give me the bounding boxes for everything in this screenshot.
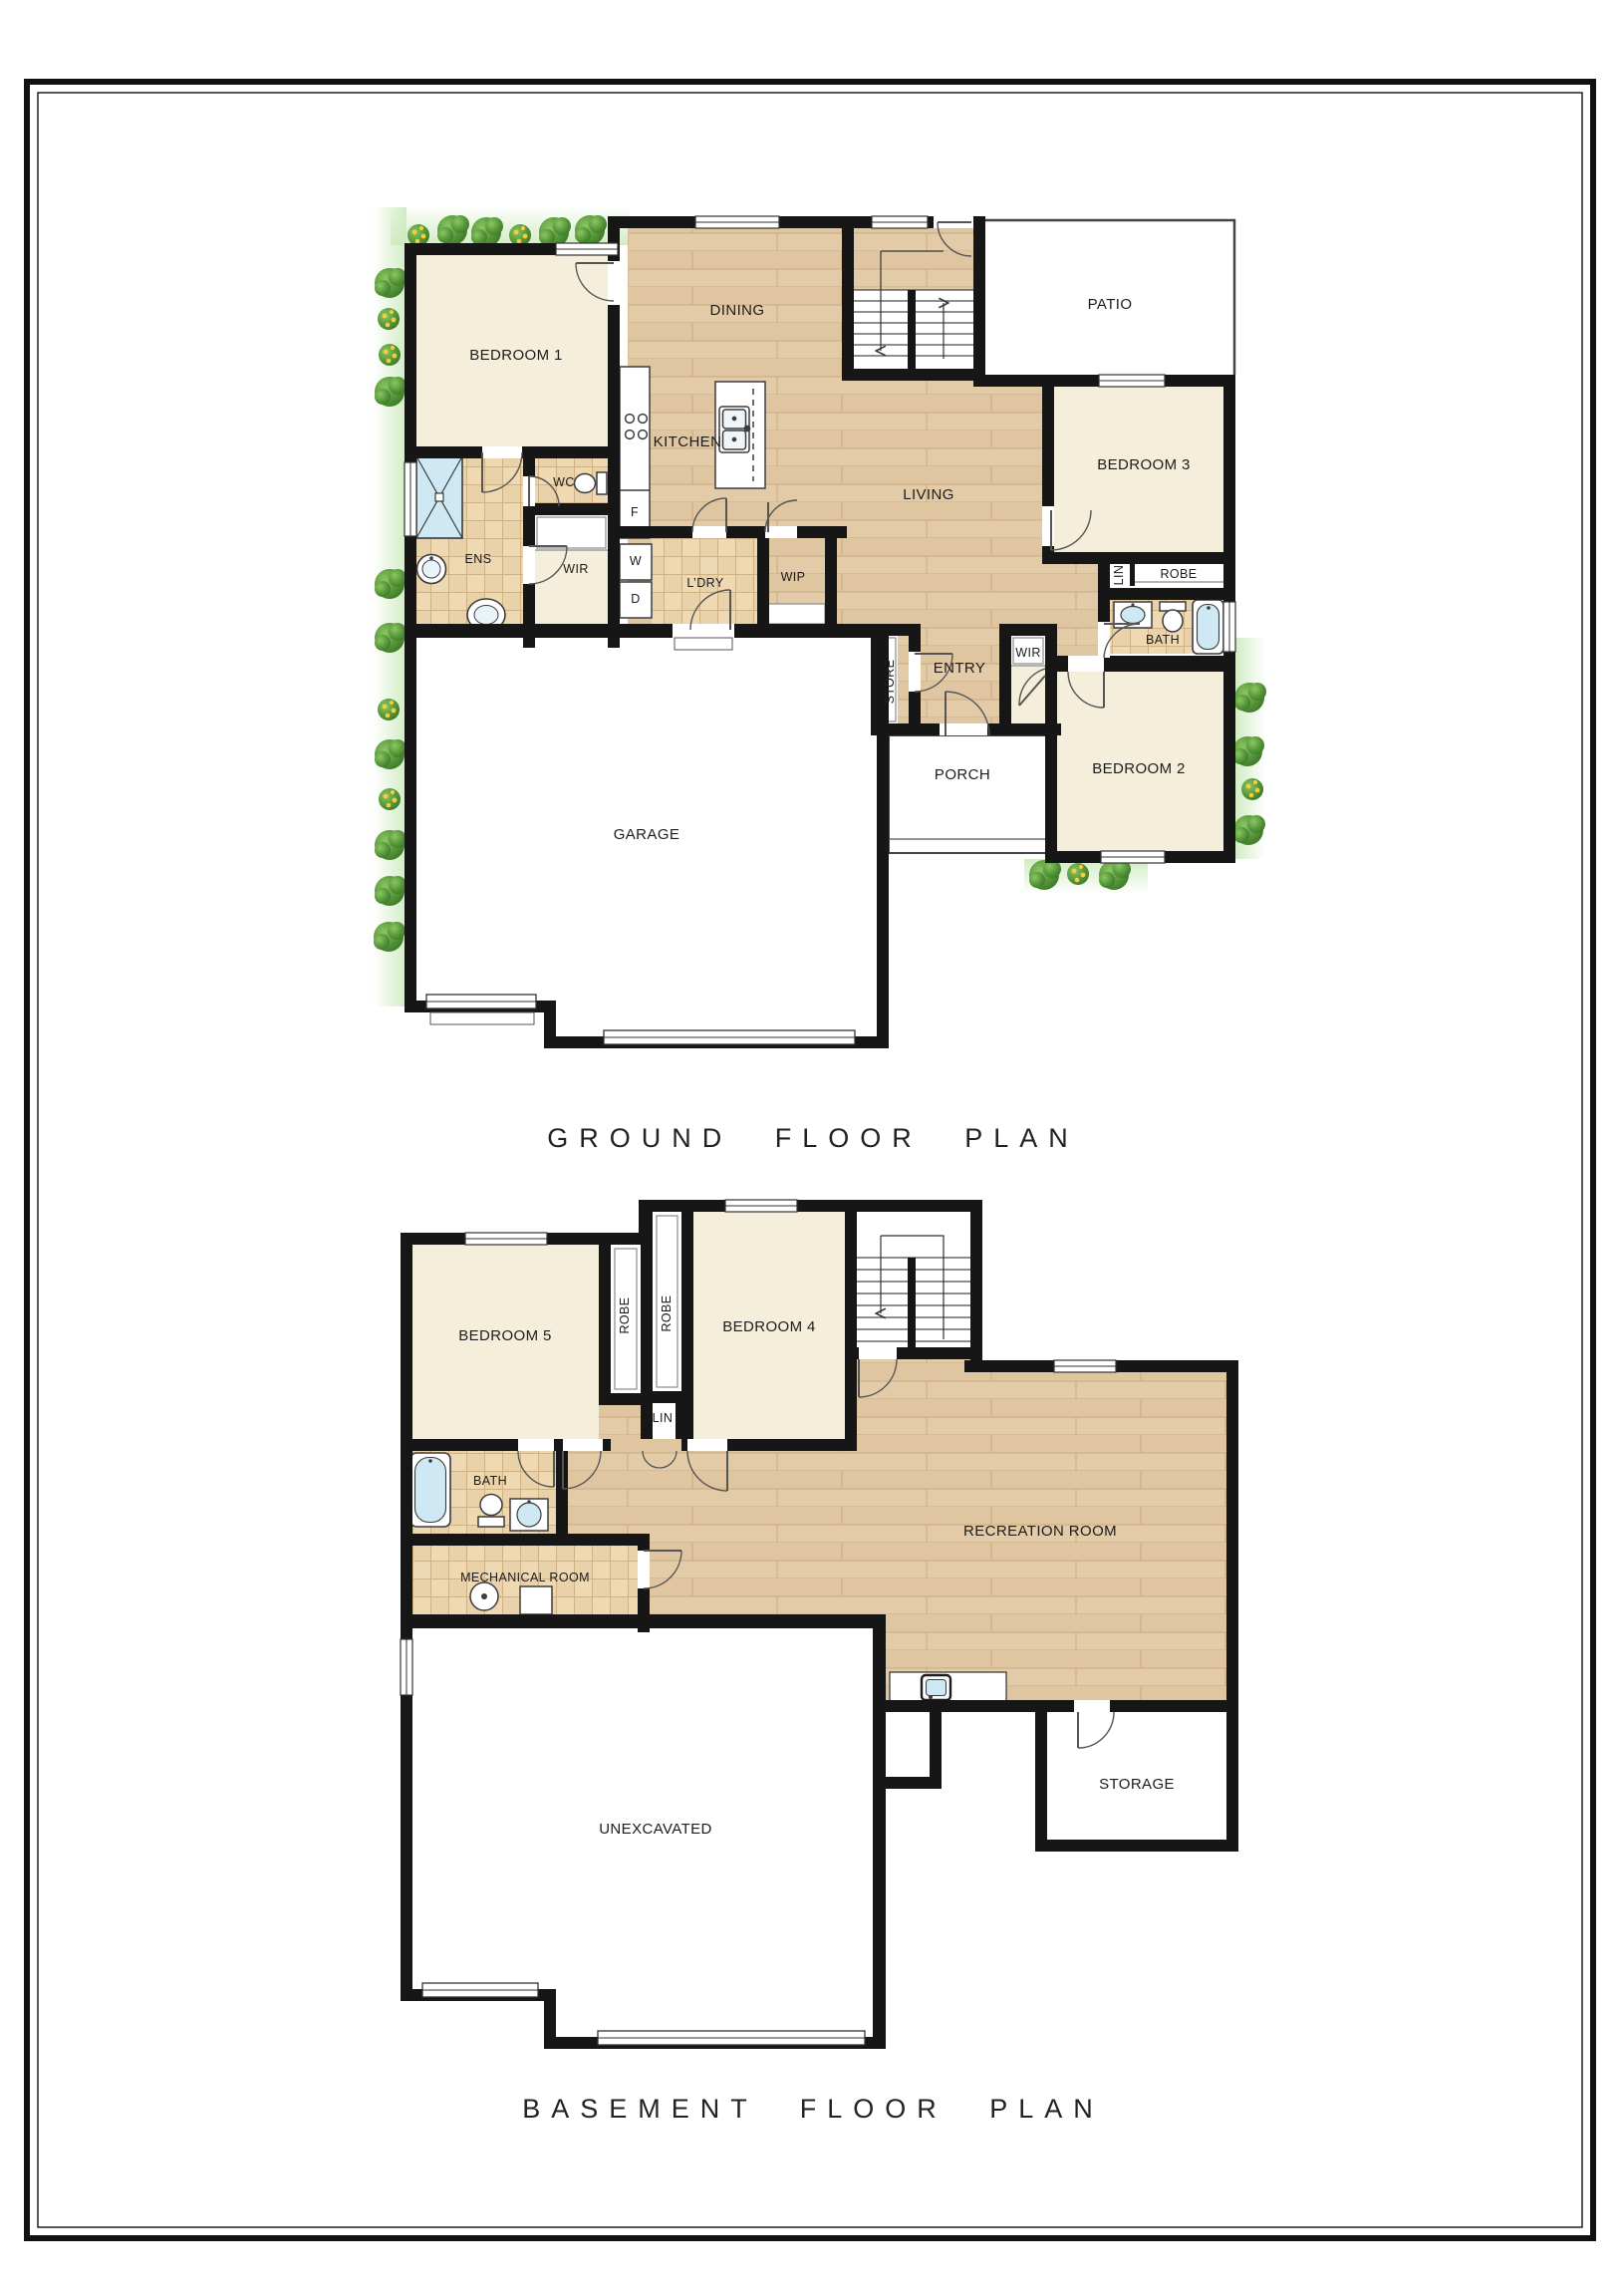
kitchen-label: KITCHEN [654, 434, 722, 451]
bush-icon [407, 224, 429, 246]
patio-label: PATIO [1088, 297, 1133, 314]
laundry-label: L’DRY [686, 577, 723, 591]
basement-floor-title: BASEMENT FLOOR PLAN [522, 2095, 1104, 2125]
window [465, 1233, 547, 1245]
window [1101, 851, 1165, 863]
stair-landing-floor [854, 228, 973, 290]
bedroom5-label: BEDROOM 5 [458, 1328, 552, 1345]
recreation-room-label: RECREATION ROOM [963, 1524, 1117, 1541]
garage-floor [416, 638, 877, 1001]
store-label: STORE [884, 660, 898, 705]
ground-floor-title: GROUND FLOOR PLAN [547, 1124, 1079, 1154]
washer-label: W [630, 555, 642, 569]
toilet-icon [478, 1495, 504, 1528]
fridge-label: F [631, 506, 639, 520]
bathtub-icon [1193, 600, 1223, 654]
porch-floor [889, 735, 1047, 853]
entry-label: ENTRY [934, 661, 986, 678]
bath-label: BATH [1146, 634, 1180, 648]
basement-bath-label: BATH [473, 1475, 507, 1489]
window [695, 216, 779, 228]
bedroom3-label: BEDROOM 3 [1097, 457, 1191, 474]
living-label: LIVING [903, 487, 954, 504]
window [556, 243, 618, 255]
bar-sink-icon [922, 1675, 950, 1700]
wir-floor [535, 550, 608, 624]
ground-floor-plan [373, 205, 1266, 1048]
garage-door [426, 995, 536, 1008]
garage-door [604, 1030, 855, 1044]
basement-linen-label: LIN [653, 1412, 674, 1426]
basin-icon [417, 555, 446, 584]
window [1223, 602, 1235, 652]
window [725, 1200, 797, 1212]
wip-label: WIP [781, 571, 806, 585]
bedroom1-label: BEDROOM 1 [469, 348, 563, 365]
porch-label: PORCH [935, 767, 990, 784]
dining-label: DINING [710, 303, 765, 320]
window [1099, 375, 1165, 387]
window [405, 462, 416, 536]
window [422, 1983, 538, 1997]
unexcavated-floor [412, 1628, 873, 1989]
mechanical-room-label: MECHANICAL ROOM [460, 1572, 590, 1585]
wir2-label: WIR [1015, 647, 1041, 661]
window [872, 216, 928, 228]
toilet-icon [575, 472, 608, 494]
garage-step [430, 1012, 534, 1024]
floor-plan-page: BEDROOM 1 DINING PATIO KITCHEN LIVING BE… [0, 0, 1622, 2296]
bedroom4-label: BEDROOM 4 [722, 1319, 816, 1336]
robe2-label: ROBE [661, 1294, 675, 1331]
cellar-floor [886, 1712, 930, 1777]
furnace-icon [520, 1586, 552, 1614]
bedroom2-label: BEDROOM 2 [1092, 761, 1186, 778]
shower-icon [416, 456, 462, 538]
wir-label: WIR [563, 563, 589, 577]
vanity-sink-icon [510, 1499, 548, 1531]
dryer-label: D [631, 593, 640, 607]
window [1054, 1360, 1116, 1372]
wet-bar [890, 1672, 1006, 1702]
storage-label: STORAGE [1099, 1777, 1175, 1794]
linen-label: LIN [1113, 565, 1127, 586]
ensuite-label: ENS [465, 553, 492, 567]
robe-label: ROBE [1160, 568, 1197, 582]
wc-label: WC [553, 476, 575, 490]
bathtub-icon [410, 1453, 450, 1527]
garage-label: GARAGE [614, 827, 680, 844]
unexcavated-label: UNEXCAVATED [599, 1822, 712, 1839]
window [598, 2031, 865, 2045]
window [401, 1639, 412, 1695]
robe1-label: ROBE [619, 1296, 633, 1333]
kitchen-sink-icon [719, 407, 750, 452]
